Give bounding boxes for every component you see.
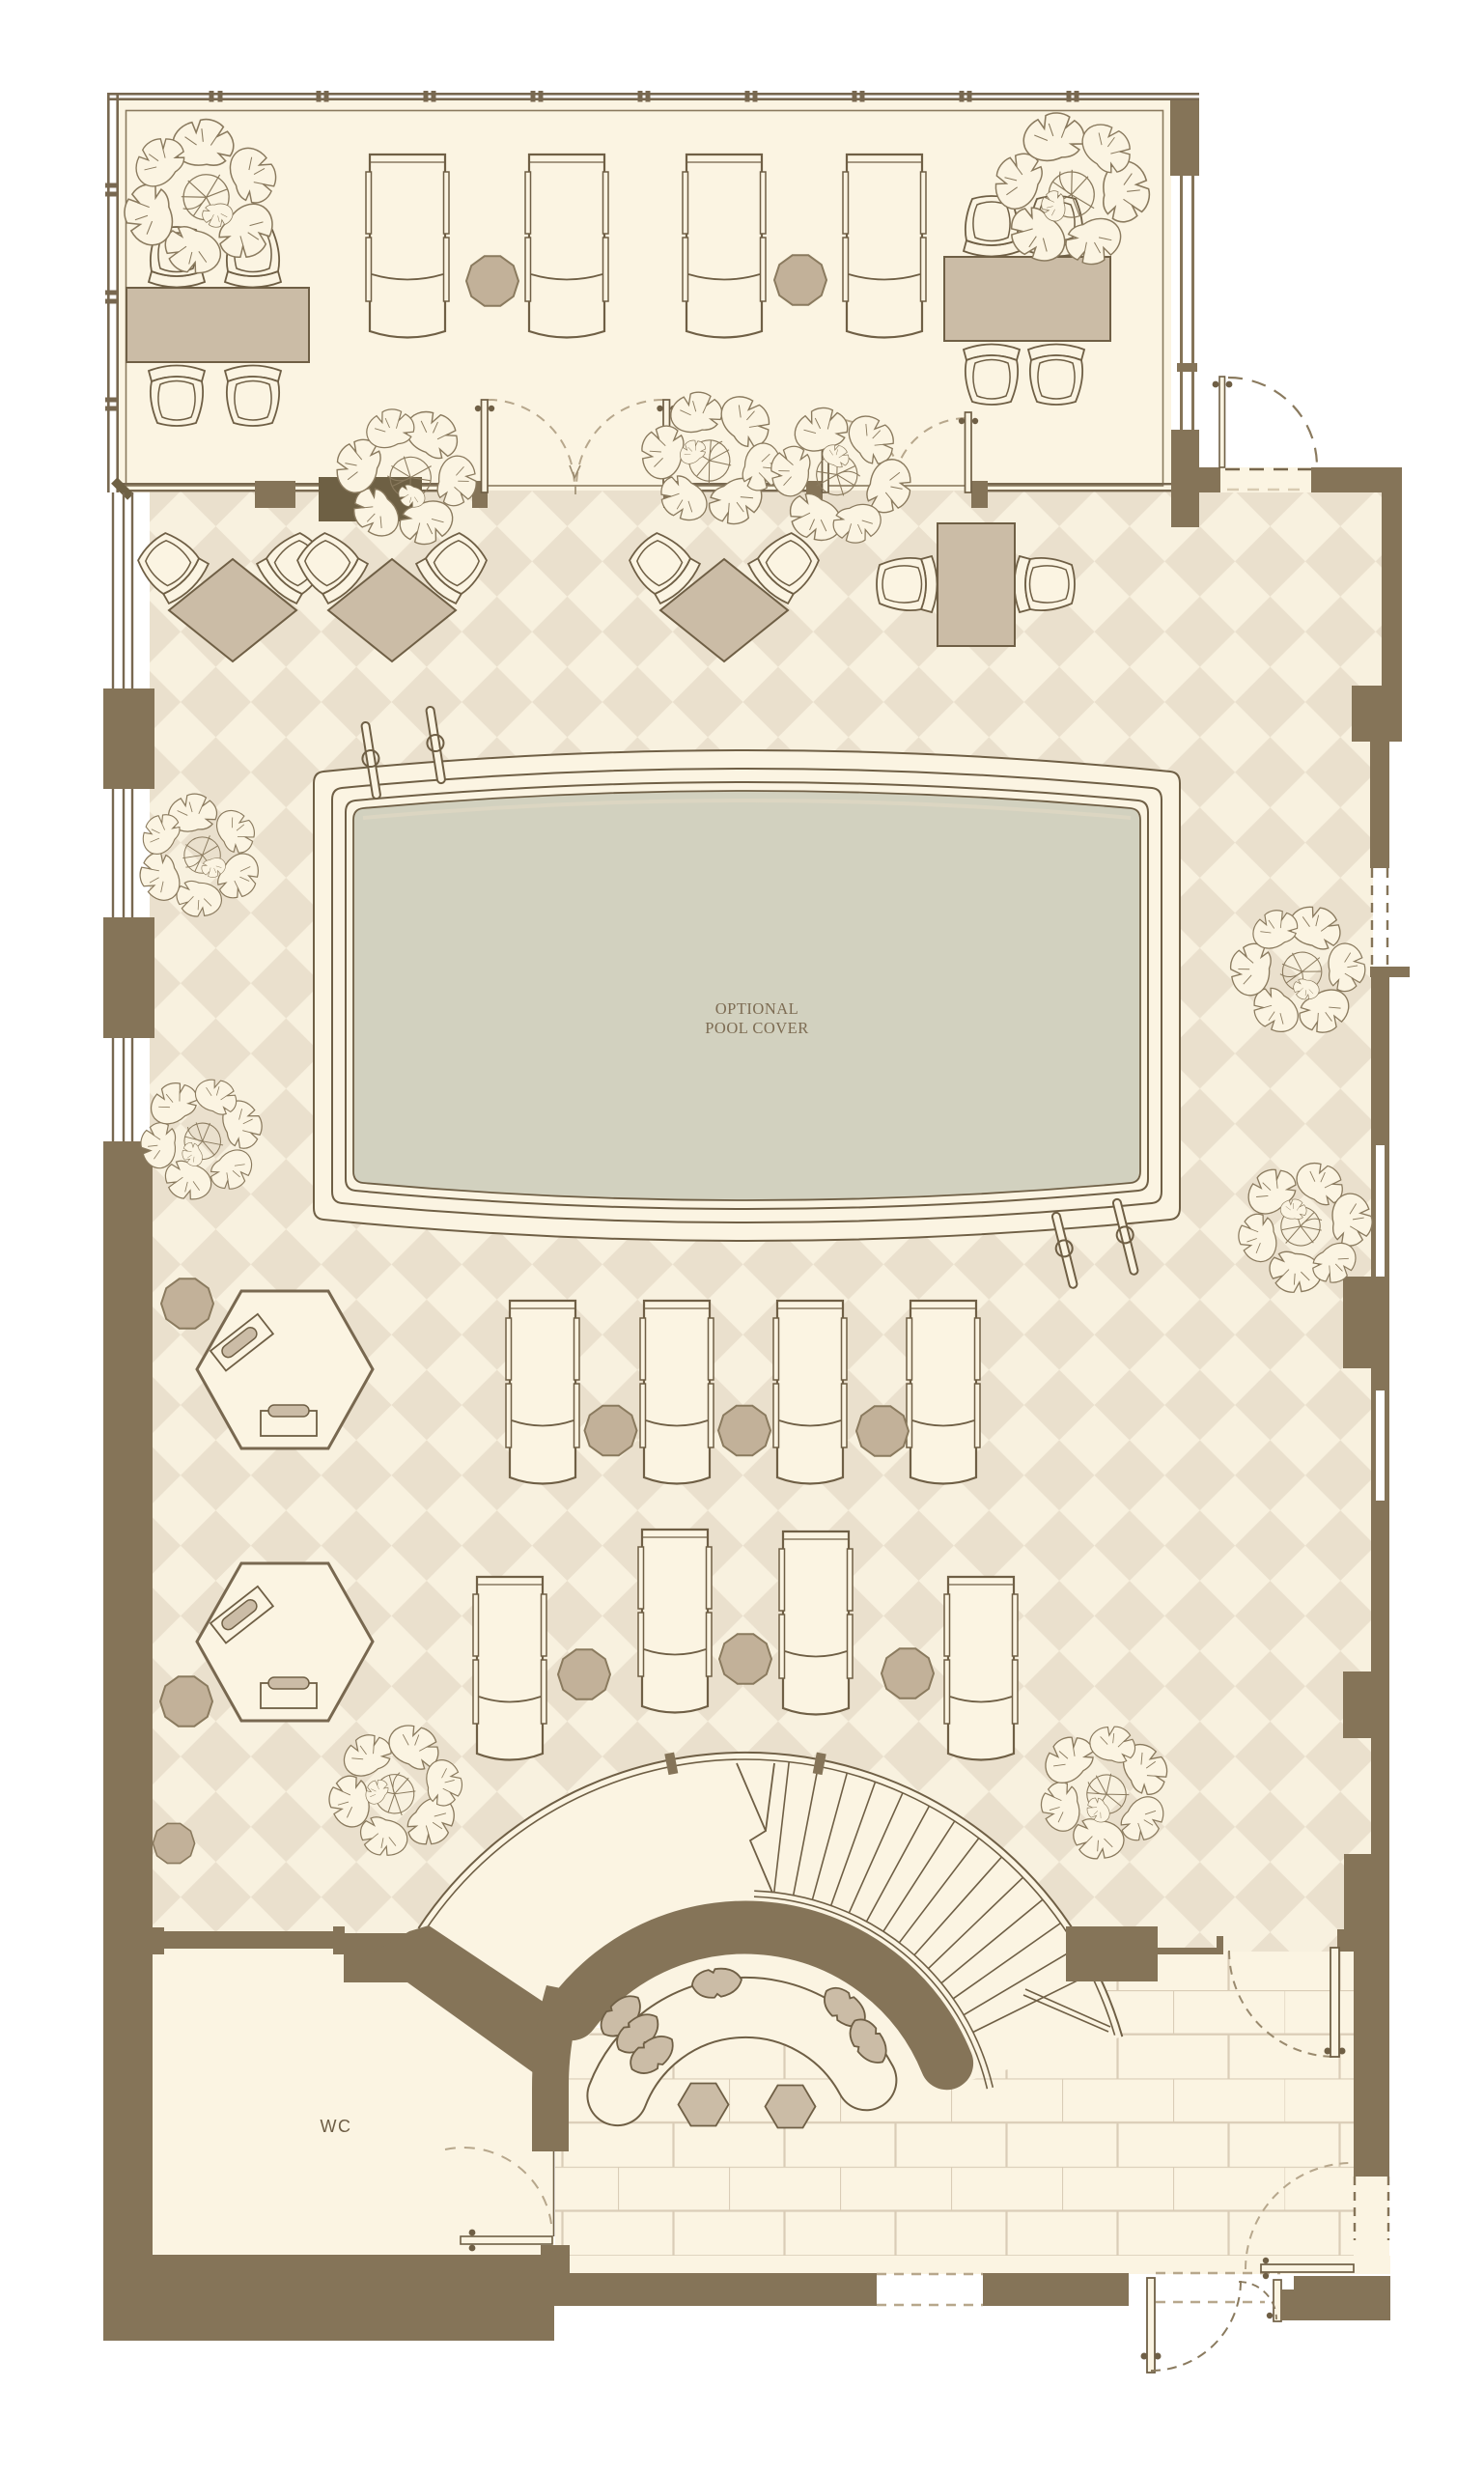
svg-text:WC: WC: [321, 2117, 352, 2136]
svg-text:OPTIONAL: OPTIONAL: [715, 999, 799, 1018]
svg-text:POOL COVER: POOL COVER: [705, 1019, 809, 1037]
